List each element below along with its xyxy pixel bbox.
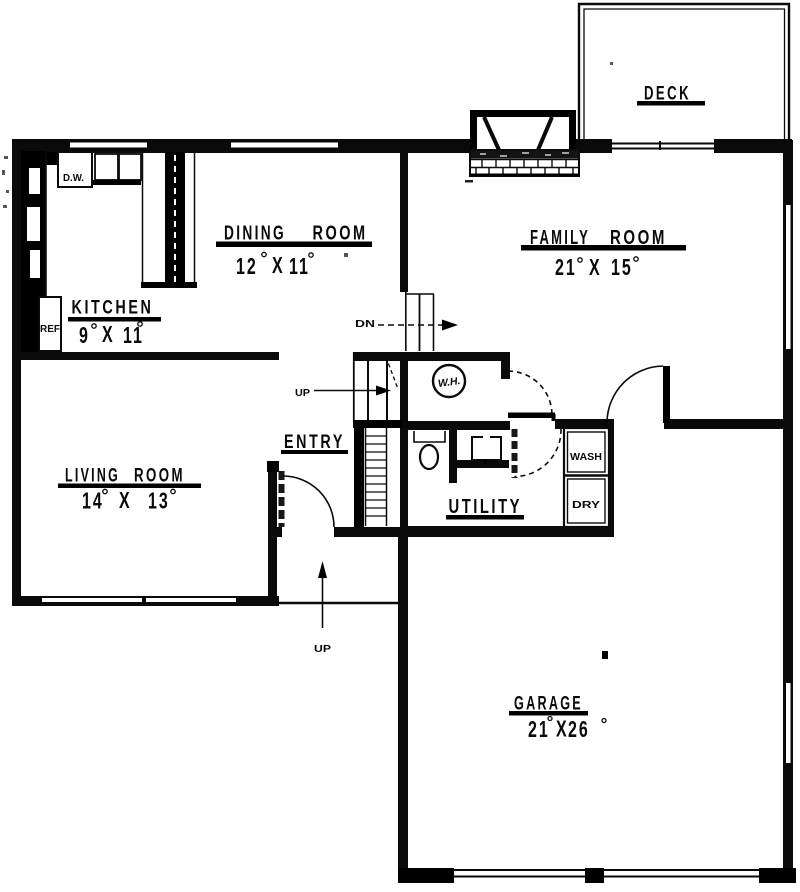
svg-text:11: 11 [123,323,144,349]
svg-text:ROOM: ROOM [134,466,185,487]
svg-text:26: 26 [568,717,590,743]
svg-text:UP: UP [314,644,331,655]
svg-text:X: X [556,717,569,743]
svg-text:15: 15 [611,255,633,281]
svg-text:UTILITY: UTILITY [449,495,523,518]
svg-text:21: 21 [528,717,550,743]
svg-text:9: 9 [79,323,90,349]
svg-text:ROOM: ROOM [313,222,368,245]
svg-text:UP: UP [295,388,310,399]
svg-text:X: X [589,255,602,281]
svg-text:LIVING: LIVING [65,466,120,487]
svg-text:X: X [119,488,132,514]
svg-text:X: X [272,253,285,279]
svg-text:REF: REF [40,324,60,335]
svg-text:14: 14 [82,489,104,515]
svg-text:12: 12 [236,254,258,280]
svg-text:KITCHEN: KITCHEN [72,297,154,319]
svg-text:DN: DN [355,319,375,330]
svg-text:DRY: DRY [572,500,600,511]
svg-text:21: 21 [555,255,577,281]
svg-text:13: 13 [148,489,170,515]
svg-text:ENTRY: ENTRY [284,432,345,453]
svg-text:DINING: DINING [224,222,286,245]
svg-text:X: X [102,322,115,348]
svg-text:WASH: WASH [570,452,602,463]
svg-text:D.W.: D.W. [63,173,84,184]
svg-text:11: 11 [289,254,310,280]
